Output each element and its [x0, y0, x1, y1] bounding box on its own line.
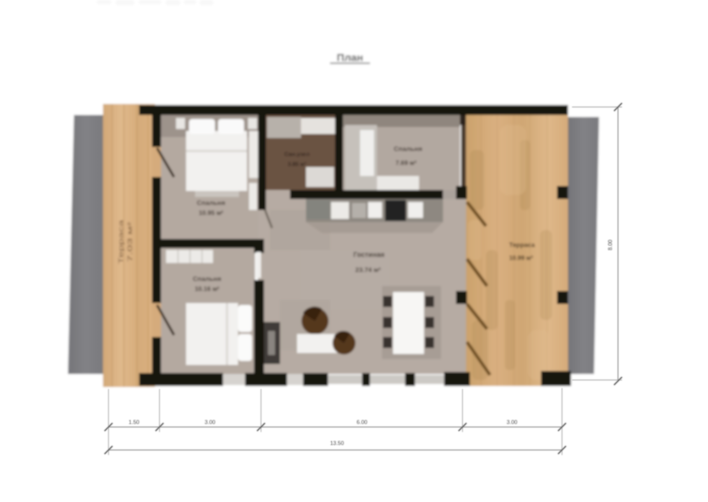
svg-text:7.69 м²: 7.69 м²: [395, 160, 416, 167]
svg-text:13.50: 13.50: [330, 441, 344, 447]
svg-text:Терраса: Терраса: [509, 242, 535, 249]
svg-text:1.50: 1.50: [129, 420, 140, 426]
svg-text:План: План: [337, 52, 363, 64]
svg-text:Спальня: Спальня: [394, 146, 423, 153]
svg-text:Сан.узел: Сан.узел: [284, 152, 310, 158]
svg-text:Спальня: Спальня: [193, 276, 222, 283]
svg-text:23.74 м²: 23.74 м²: [355, 267, 381, 274]
svg-text:3.00: 3.00: [507, 420, 518, 426]
svg-text:10.95 м²: 10.95 м²: [199, 210, 224, 217]
svg-text:3.85 м²: 3.85 м²: [288, 161, 307, 168]
svg-text:7.03 м²: 7.03 м²: [127, 222, 134, 262]
svg-text:Терраса: Терраса: [118, 219, 125, 264]
svg-text:10.16 м²: 10.16 м²: [195, 286, 220, 293]
svg-text:3.00: 3.00: [205, 420, 216, 426]
svg-text:8.00: 8.00: [608, 240, 614, 251]
svg-text:10.99 м²: 10.99 м²: [509, 255, 533, 262]
svg-text:Гостиная: Гостиная: [353, 252, 384, 259]
svg-text:Спальня: Спальня: [197, 200, 226, 207]
svg-text:6.00: 6.00: [357, 420, 368, 426]
